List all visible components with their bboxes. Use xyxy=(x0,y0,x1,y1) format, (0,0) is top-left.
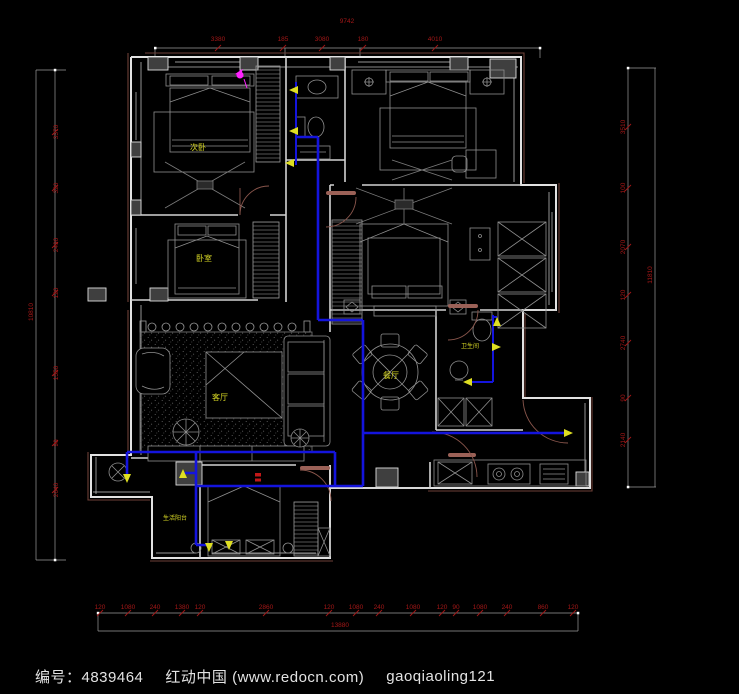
water-outlet-arrow-icon xyxy=(289,86,298,94)
dimension-lines xyxy=(36,48,656,631)
dimension-value: 240 xyxy=(150,604,161,611)
watermark-bar: 编号：4839464 红动中国 (www.redocn.com) gaoqiao… xyxy=(0,658,739,694)
dimension-value: 120 xyxy=(620,289,627,300)
dimension-value: 1080 xyxy=(349,604,364,611)
wardrobe-kids xyxy=(294,502,318,556)
dimension-value: 90 xyxy=(53,439,60,447)
water-outlet-arrow-icon xyxy=(493,317,501,326)
dimension-value: 2070 xyxy=(620,239,627,254)
room-label-bedroom: 卧室 xyxy=(196,253,212,263)
wardrobe-small xyxy=(253,222,279,298)
room-label-living-room: 客厅 xyxy=(212,392,228,402)
floor-plan-drawing: 次卧卧室客厅餐厅卫生间生活阳台 338018530801804010974212… xyxy=(0,0,739,660)
dimension-value: 120 xyxy=(437,604,448,611)
author-text: gaoqiaoling121 xyxy=(386,668,495,685)
cad-floorplan-page: 次卧卧室客厅餐厅卫生间生活阳台 338018530801804010974212… xyxy=(0,0,739,694)
bathroom-right-fixtures xyxy=(438,312,492,426)
dimension-value: 1080 xyxy=(473,604,488,611)
dimension-value: 2490 xyxy=(53,237,60,252)
dimension-value: 860 xyxy=(538,604,549,611)
power-symbol-icon xyxy=(255,473,261,482)
dimension-value: 3370 xyxy=(53,124,60,139)
dimension-value: 185 xyxy=(278,36,289,43)
dimension-value: 320 xyxy=(53,182,60,193)
dimension-value: 3380 xyxy=(211,36,226,43)
dimension-value: 1550 xyxy=(53,365,60,380)
ceiling-light-secondary xyxy=(165,162,245,208)
site-text: 红动中国 (www.redocn.com) xyxy=(165,666,364,687)
dimension-value: 1080 xyxy=(121,604,136,611)
dresser-master xyxy=(470,228,490,260)
image-id-text: 编号：4839464 xyxy=(35,666,143,687)
floor-drain xyxy=(109,463,127,481)
dimension-value: 100 xyxy=(620,182,627,193)
dimension-value: 1380 xyxy=(175,604,190,611)
dimension-value: 13880 xyxy=(331,622,349,629)
water-outlet-arrow-icon xyxy=(289,127,298,135)
living-room-screen xyxy=(140,321,310,332)
dimension-value: 120 xyxy=(324,604,335,611)
dimension-value: 11810 xyxy=(647,266,654,284)
water-outlet-arrow-icon xyxy=(463,378,472,386)
closet-kids xyxy=(318,528,330,556)
dimension-value: 3080 xyxy=(315,36,330,43)
kitchen-counter xyxy=(434,460,586,486)
dimension-value: 10810 xyxy=(28,303,35,321)
room-label-bedroom-secondary: 次卧 xyxy=(190,142,206,152)
wardrobe-secondary xyxy=(256,66,280,162)
dimension-value: 4010 xyxy=(428,36,443,43)
dimension-value: 120 xyxy=(195,604,206,611)
armchair xyxy=(136,348,170,394)
dimension-value: 2140 xyxy=(620,432,627,447)
dimension-value: 2640 xyxy=(53,482,60,497)
water-outlet-arrow-icon xyxy=(225,541,233,550)
desk-and-chair xyxy=(452,150,496,178)
dimension-value: 9742 xyxy=(340,18,355,25)
water-outlet-arrow-icon xyxy=(492,343,501,351)
dimension-value: 1080 xyxy=(406,604,421,611)
dimension-value: 2860 xyxy=(259,604,274,611)
bed-secondary xyxy=(154,74,254,172)
dimension-value: 120 xyxy=(95,604,106,611)
dimension-value: 180 xyxy=(358,36,369,43)
room-label-bathroom: 卫生间 xyxy=(461,342,479,350)
dimension-value: 120 xyxy=(53,287,60,298)
sofa xyxy=(284,336,330,446)
dimension-value: 2740 xyxy=(620,335,627,350)
ceiling-light-master xyxy=(356,188,452,224)
coffee-table xyxy=(206,352,282,418)
room-label-dining-room: 餐厅 xyxy=(383,371,399,380)
room-label-utility-balcony: 生活阳台 xyxy=(163,514,187,522)
tv-cabinet xyxy=(148,446,304,461)
dimension-value: 120 xyxy=(568,604,579,611)
dimension-value: 240 xyxy=(502,604,513,611)
water-outlet-arrow-icon xyxy=(564,429,573,437)
wardrobe-master xyxy=(332,220,362,324)
bed-guest xyxy=(352,70,504,170)
dimension-value: 3510 xyxy=(620,119,627,134)
dimension-value: 240 xyxy=(374,604,385,611)
